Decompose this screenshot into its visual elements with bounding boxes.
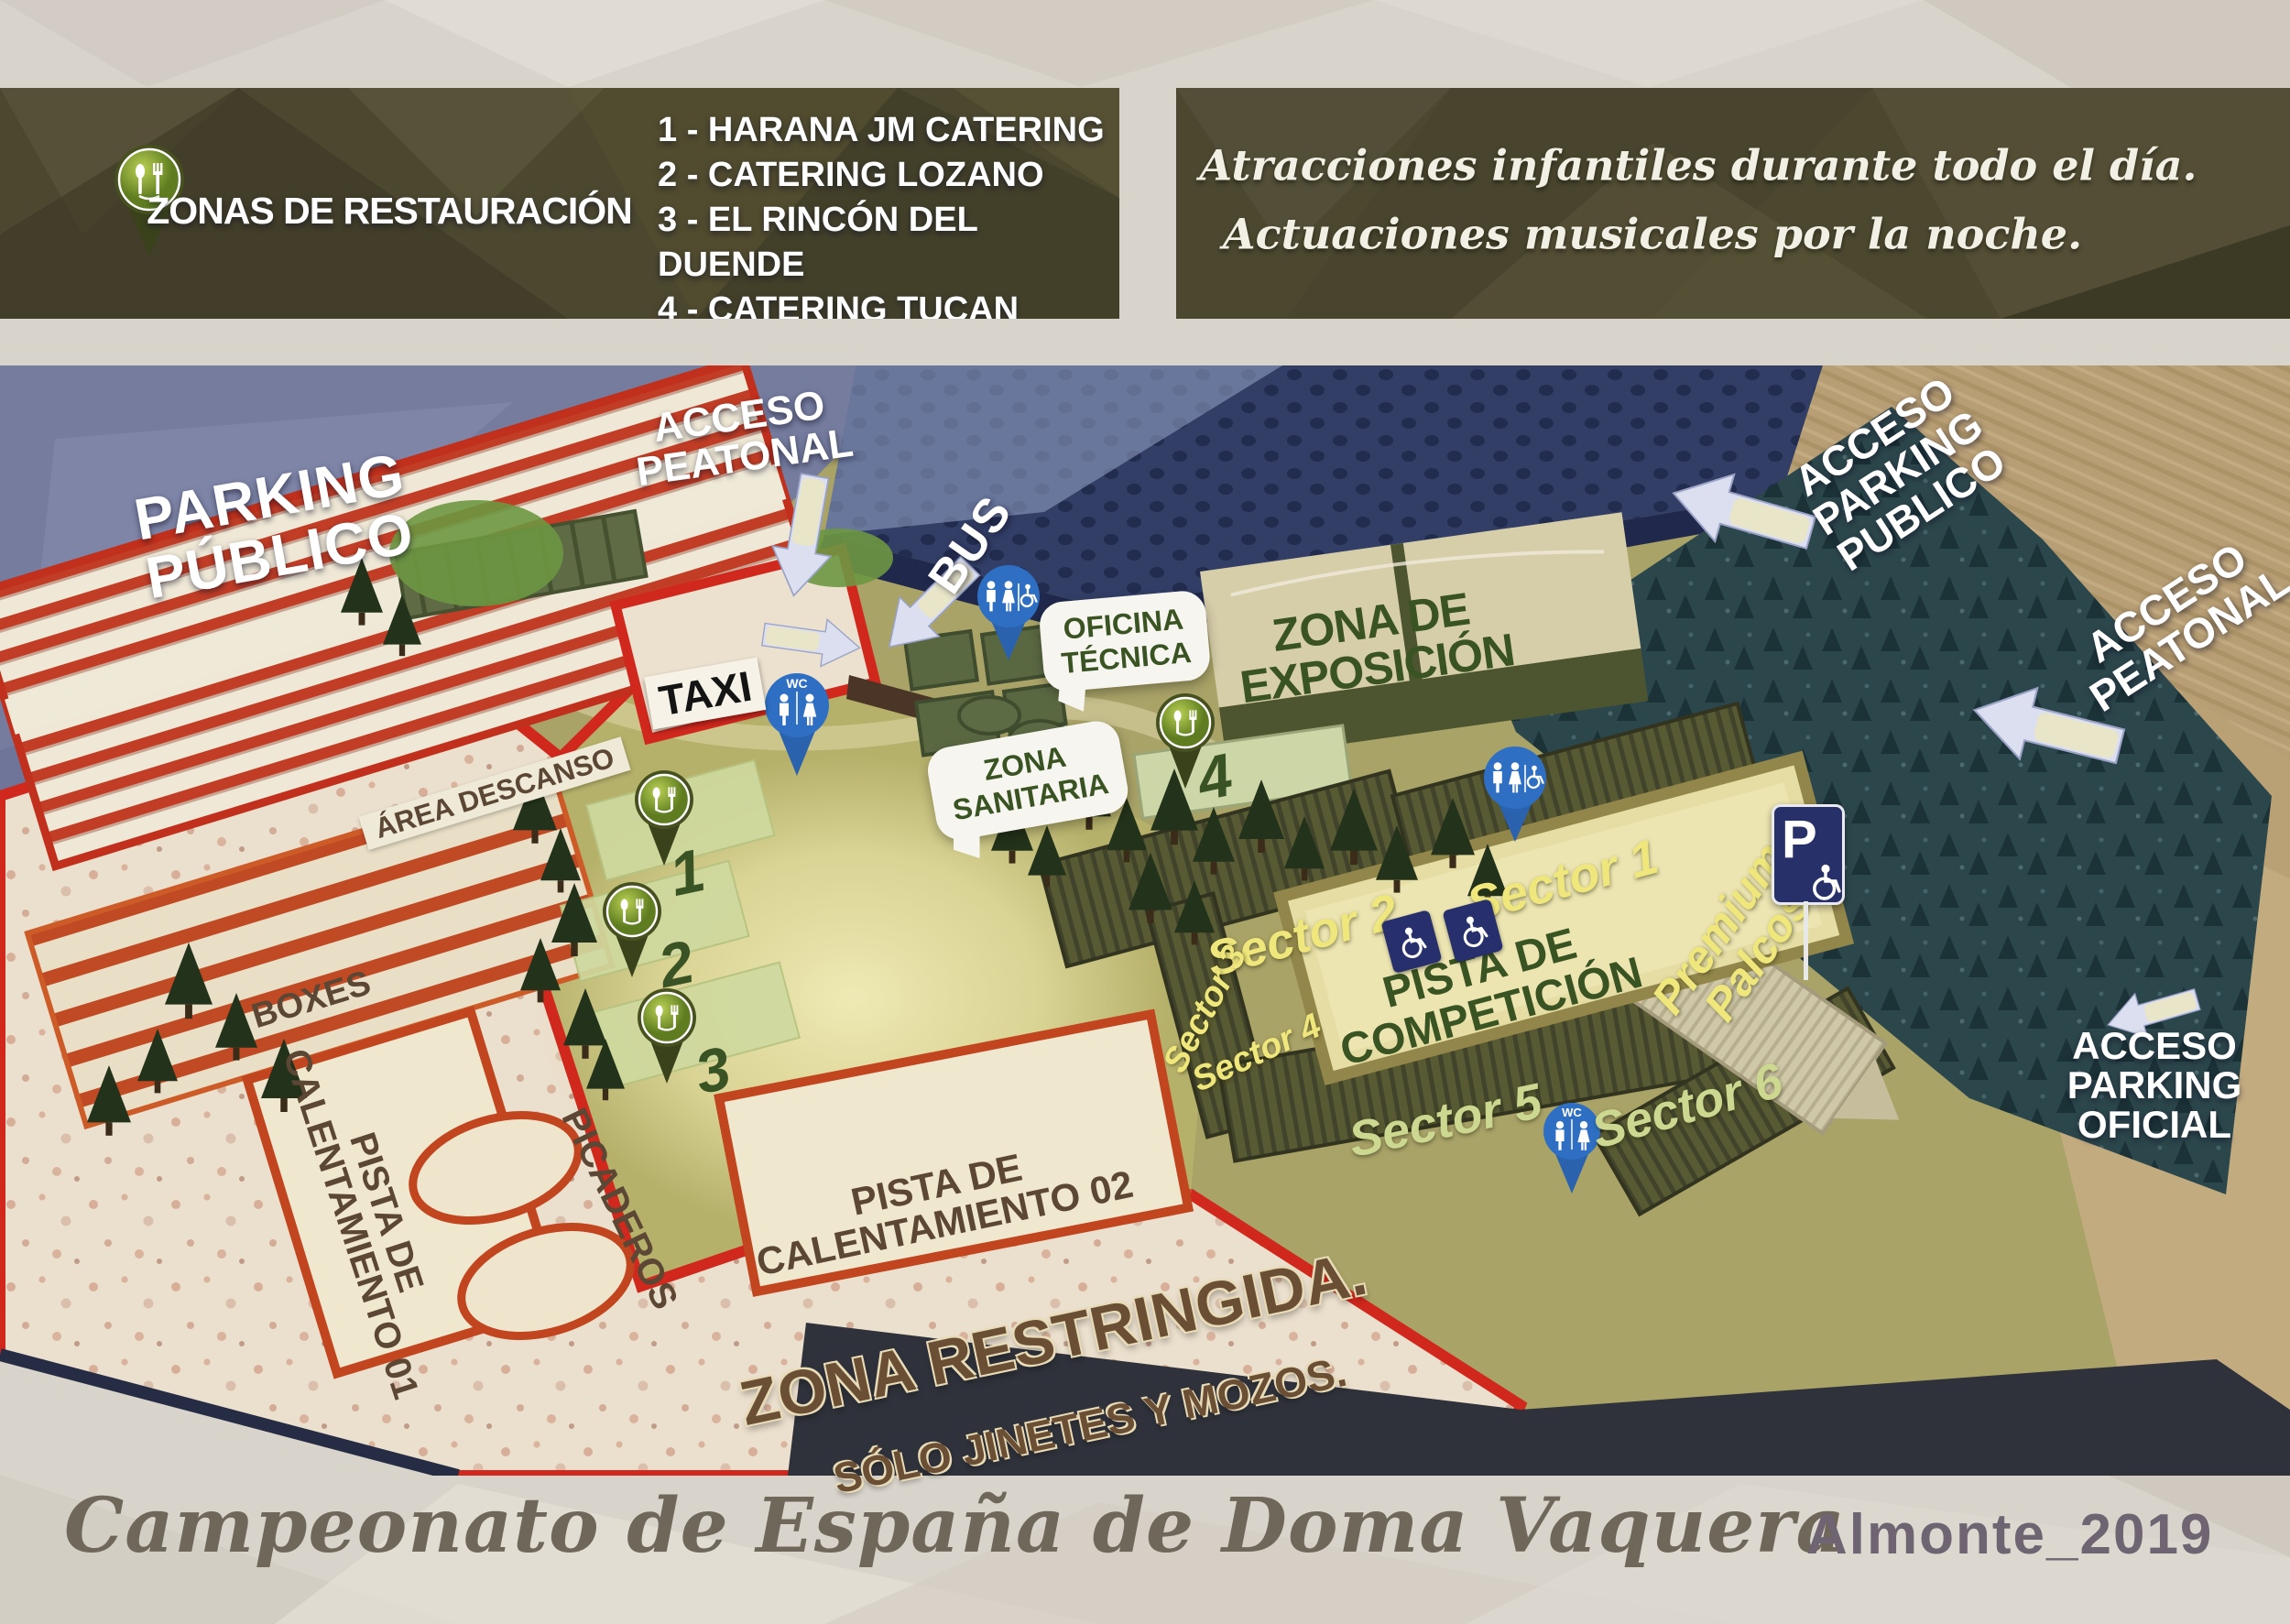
svg-text:WC: WC bbox=[786, 676, 807, 691]
legend-item: 3 - EL RINCÓN DEL DUENDE bbox=[658, 198, 1119, 288]
footer-edition: Almonte_2019 bbox=[1806, 1502, 2213, 1567]
legend-title: ZONAS DE RESTAURACIÓN bbox=[147, 192, 631, 231]
notice-line-1: Atracciones infantiles durante todo el d… bbox=[1200, 145, 2197, 188]
water-tank bbox=[959, 697, 1020, 734]
accessible-parking-sign: P bbox=[1772, 804, 1845, 905]
legend-banner: ZONAS DE RESTAURACIÓN 1 - HARANA JM CATE… bbox=[0, 88, 1119, 319]
legend-item: 4 - CATERING TUCAN bbox=[658, 288, 1119, 319]
notice-banner: Atracciones infantiles durante todo el d… bbox=[1176, 88, 2290, 319]
notice-banner-texture bbox=[1176, 88, 2290, 319]
notice-line-2: Actuaciones musicales por la noche. bbox=[1223, 213, 2082, 256]
legend-item-list: 1 - HARANA JM CATERING 2 - CATERING LOZA… bbox=[658, 108, 1119, 319]
event-map-page: ZONAS DE RESTAURACIÓN 1 - HARANA JM CATE… bbox=[0, 0, 2290, 1624]
label-acceso-parking-oficial: ACCESOPARKINGOFICIAL bbox=[2067, 1027, 2242, 1144]
legend-item: 2 - CATERING LOZANO bbox=[658, 153, 1119, 198]
footer-title: Campeonato de España de Doma Vaquera bbox=[64, 1482, 1846, 1570]
legend-item: 1 - HARANA JM CATERING bbox=[658, 108, 1119, 153]
svg-text:WC: WC bbox=[1562, 1106, 1582, 1119]
parking-sign-pole bbox=[1804, 901, 1808, 980]
wheelchair-icon bbox=[1807, 860, 1844, 902]
oficina-tecnica-bubble: OFICINATÉCNICA bbox=[1038, 589, 1212, 693]
